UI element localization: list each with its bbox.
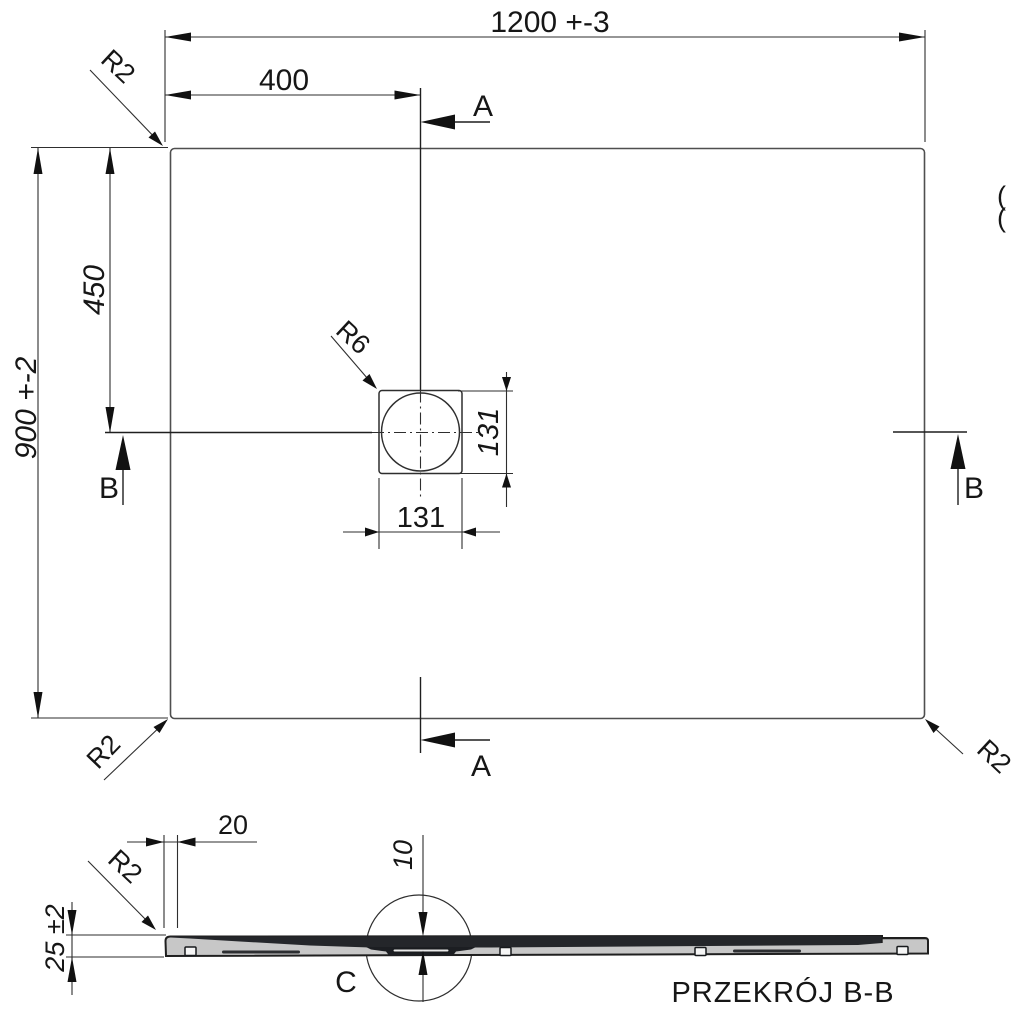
section-b-left-label: B	[99, 472, 119, 505]
drain-channel	[393, 949, 449, 952]
mounting-notch	[185, 947, 196, 956]
tray-profile	[166, 936, 929, 956]
section-a-top-label: A	[473, 90, 493, 123]
detail-label: C	[335, 966, 357, 999]
dim-drain-height-label: 131	[473, 408, 505, 456]
dim-thickness: 25 ±2	[40, 902, 166, 995]
section-b-right-label: B	[964, 472, 984, 505]
radius-bottom-left: R2	[81, 719, 168, 780]
radius-drain: R6	[330, 315, 377, 389]
radius-edge: R2	[88, 844, 156, 930]
tray-outline	[171, 149, 925, 719]
dim-drain-offset-x-label: 400	[259, 64, 309, 97]
dim-drain-width: 131	[343, 478, 500, 549]
dim-drain-depth: 10	[388, 835, 428, 1002]
dim-drain-offset-y: 450	[78, 148, 168, 434]
radius-bottom-right-label: R2	[971, 734, 1017, 779]
radius-drain-label: R6	[330, 315, 376, 360]
plan-view: 1200 +-3 400 450 900 +-2	[10, 6, 1017, 783]
section-view: C 25 ±2 20	[40, 810, 928, 1009]
section-line-b: B B	[99, 432, 984, 505]
bottom-step	[733, 950, 801, 953]
dim-rim-width: 20	[127, 810, 257, 928]
dim-width-label: 1200 +-3	[490, 6, 609, 39]
dim-drain-width-label: 131	[397, 502, 445, 534]
dim-drain-offset-y-label: 450	[78, 265, 111, 315]
radius-bottom-right: R2	[925, 719, 1017, 779]
edge-artifact-glyph: (	[997, 203, 1006, 233]
dim-thickness-label: 25 ±2	[40, 904, 70, 972]
bottom-step	[222, 951, 300, 954]
shower-tray-drawing: 1200 +-3 400 450 900 +-2	[0, 0, 1020, 1020]
dim-height-label: 900 +-2	[10, 356, 43, 459]
mounting-notch	[897, 947, 908, 955]
dim-drain-depth-label: 10	[388, 840, 418, 870]
radius-bottom-left-label: R2	[81, 729, 127, 775]
edge-artifacts: ( (	[997, 181, 1006, 233]
technical-drawing-page: 1200 +-3 400 450 900 +-2	[0, 0, 1020, 1020]
mounting-notch	[695, 948, 706, 956]
mounting-notch	[500, 948, 511, 956]
dim-rim-width-label: 20	[218, 810, 248, 840]
dim-drain-height: 131	[458, 372, 513, 507]
section-title: PRZEKRÓJ B-B	[671, 976, 894, 1009]
section-a-bottom-label: A	[471, 750, 491, 783]
dim-drain-offset-x: 400	[165, 64, 421, 100]
radius-top-left: R2	[90, 44, 163, 146]
